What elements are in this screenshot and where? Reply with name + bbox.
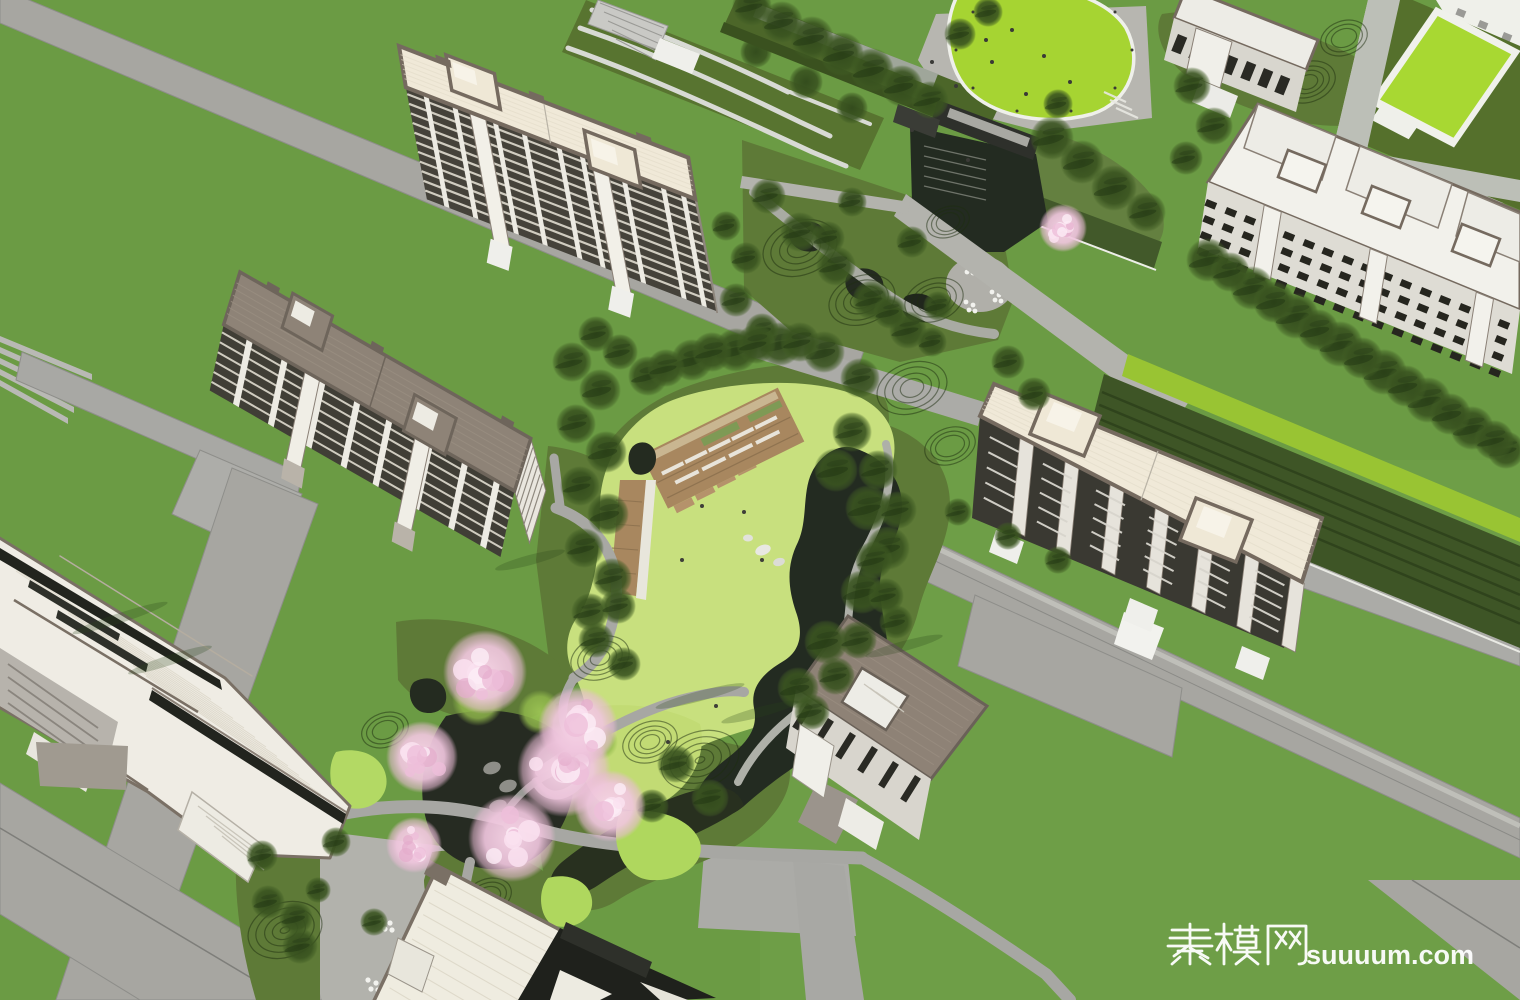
- svg-text:suuuum.com: suuuum.com: [1306, 940, 1474, 970]
